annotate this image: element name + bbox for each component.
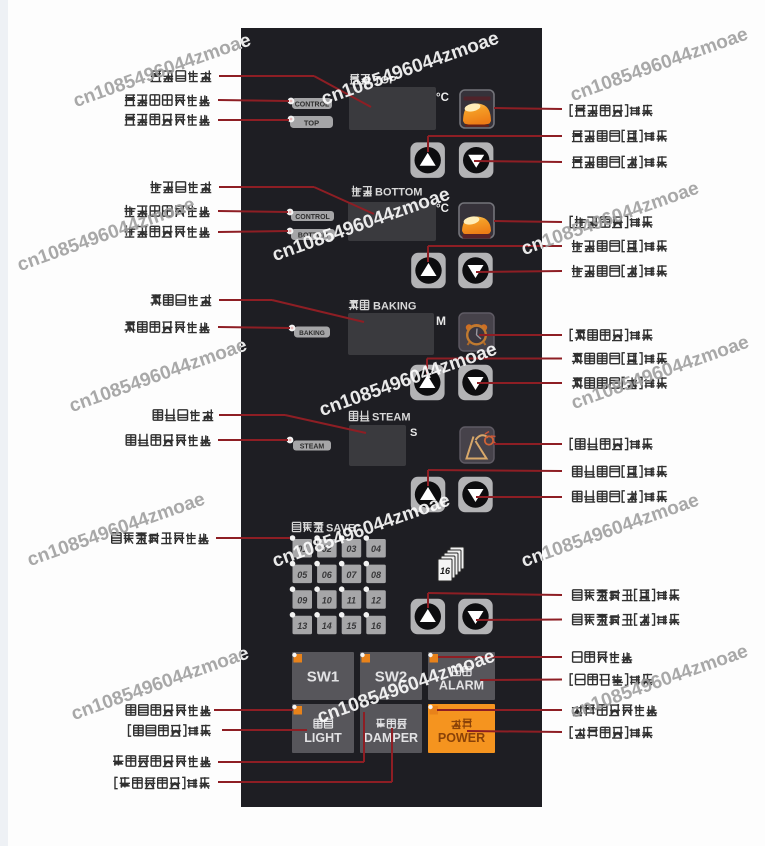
svg-text:11: 11: [347, 595, 356, 605]
svg-text:05: 05: [297, 570, 308, 580]
svg-text:15: 15: [346, 621, 357, 631]
svg-text:16: 16: [371, 621, 382, 631]
svg-text:06: 06: [322, 570, 333, 580]
svg-text:04: 04: [371, 544, 381, 554]
svg-text:10: 10: [322, 595, 332, 605]
svg-text:07: 07: [346, 570, 357, 580]
svg-text:S: S: [410, 427, 417, 439]
svg-text:08: 08: [371, 570, 381, 580]
svg-text:12: 12: [371, 595, 381, 605]
svg-text:POWER: POWER: [438, 731, 485, 745]
svg-text:CONTROL: CONTROL: [295, 214, 330, 221]
svg-text:M: M: [436, 314, 446, 328]
svg-text:SW1: SW1: [307, 668, 340, 685]
svg-text:14: 14: [322, 621, 332, 631]
svg-text:°C: °C: [436, 92, 449, 104]
svg-text:13: 13: [297, 621, 307, 631]
svg-text:BAKING: BAKING: [299, 330, 325, 337]
svg-text:16: 16: [440, 566, 451, 576]
svg-text:TOP: TOP: [304, 118, 319, 127]
svg-text:09: 09: [297, 595, 307, 605]
svg-text:LIGHT: LIGHT: [304, 731, 342, 745]
svg-text:BAKING: BAKING: [373, 301, 416, 313]
svg-text:STEAM: STEAM: [372, 412, 411, 424]
svg-text:STEAM: STEAM: [300, 443, 325, 450]
